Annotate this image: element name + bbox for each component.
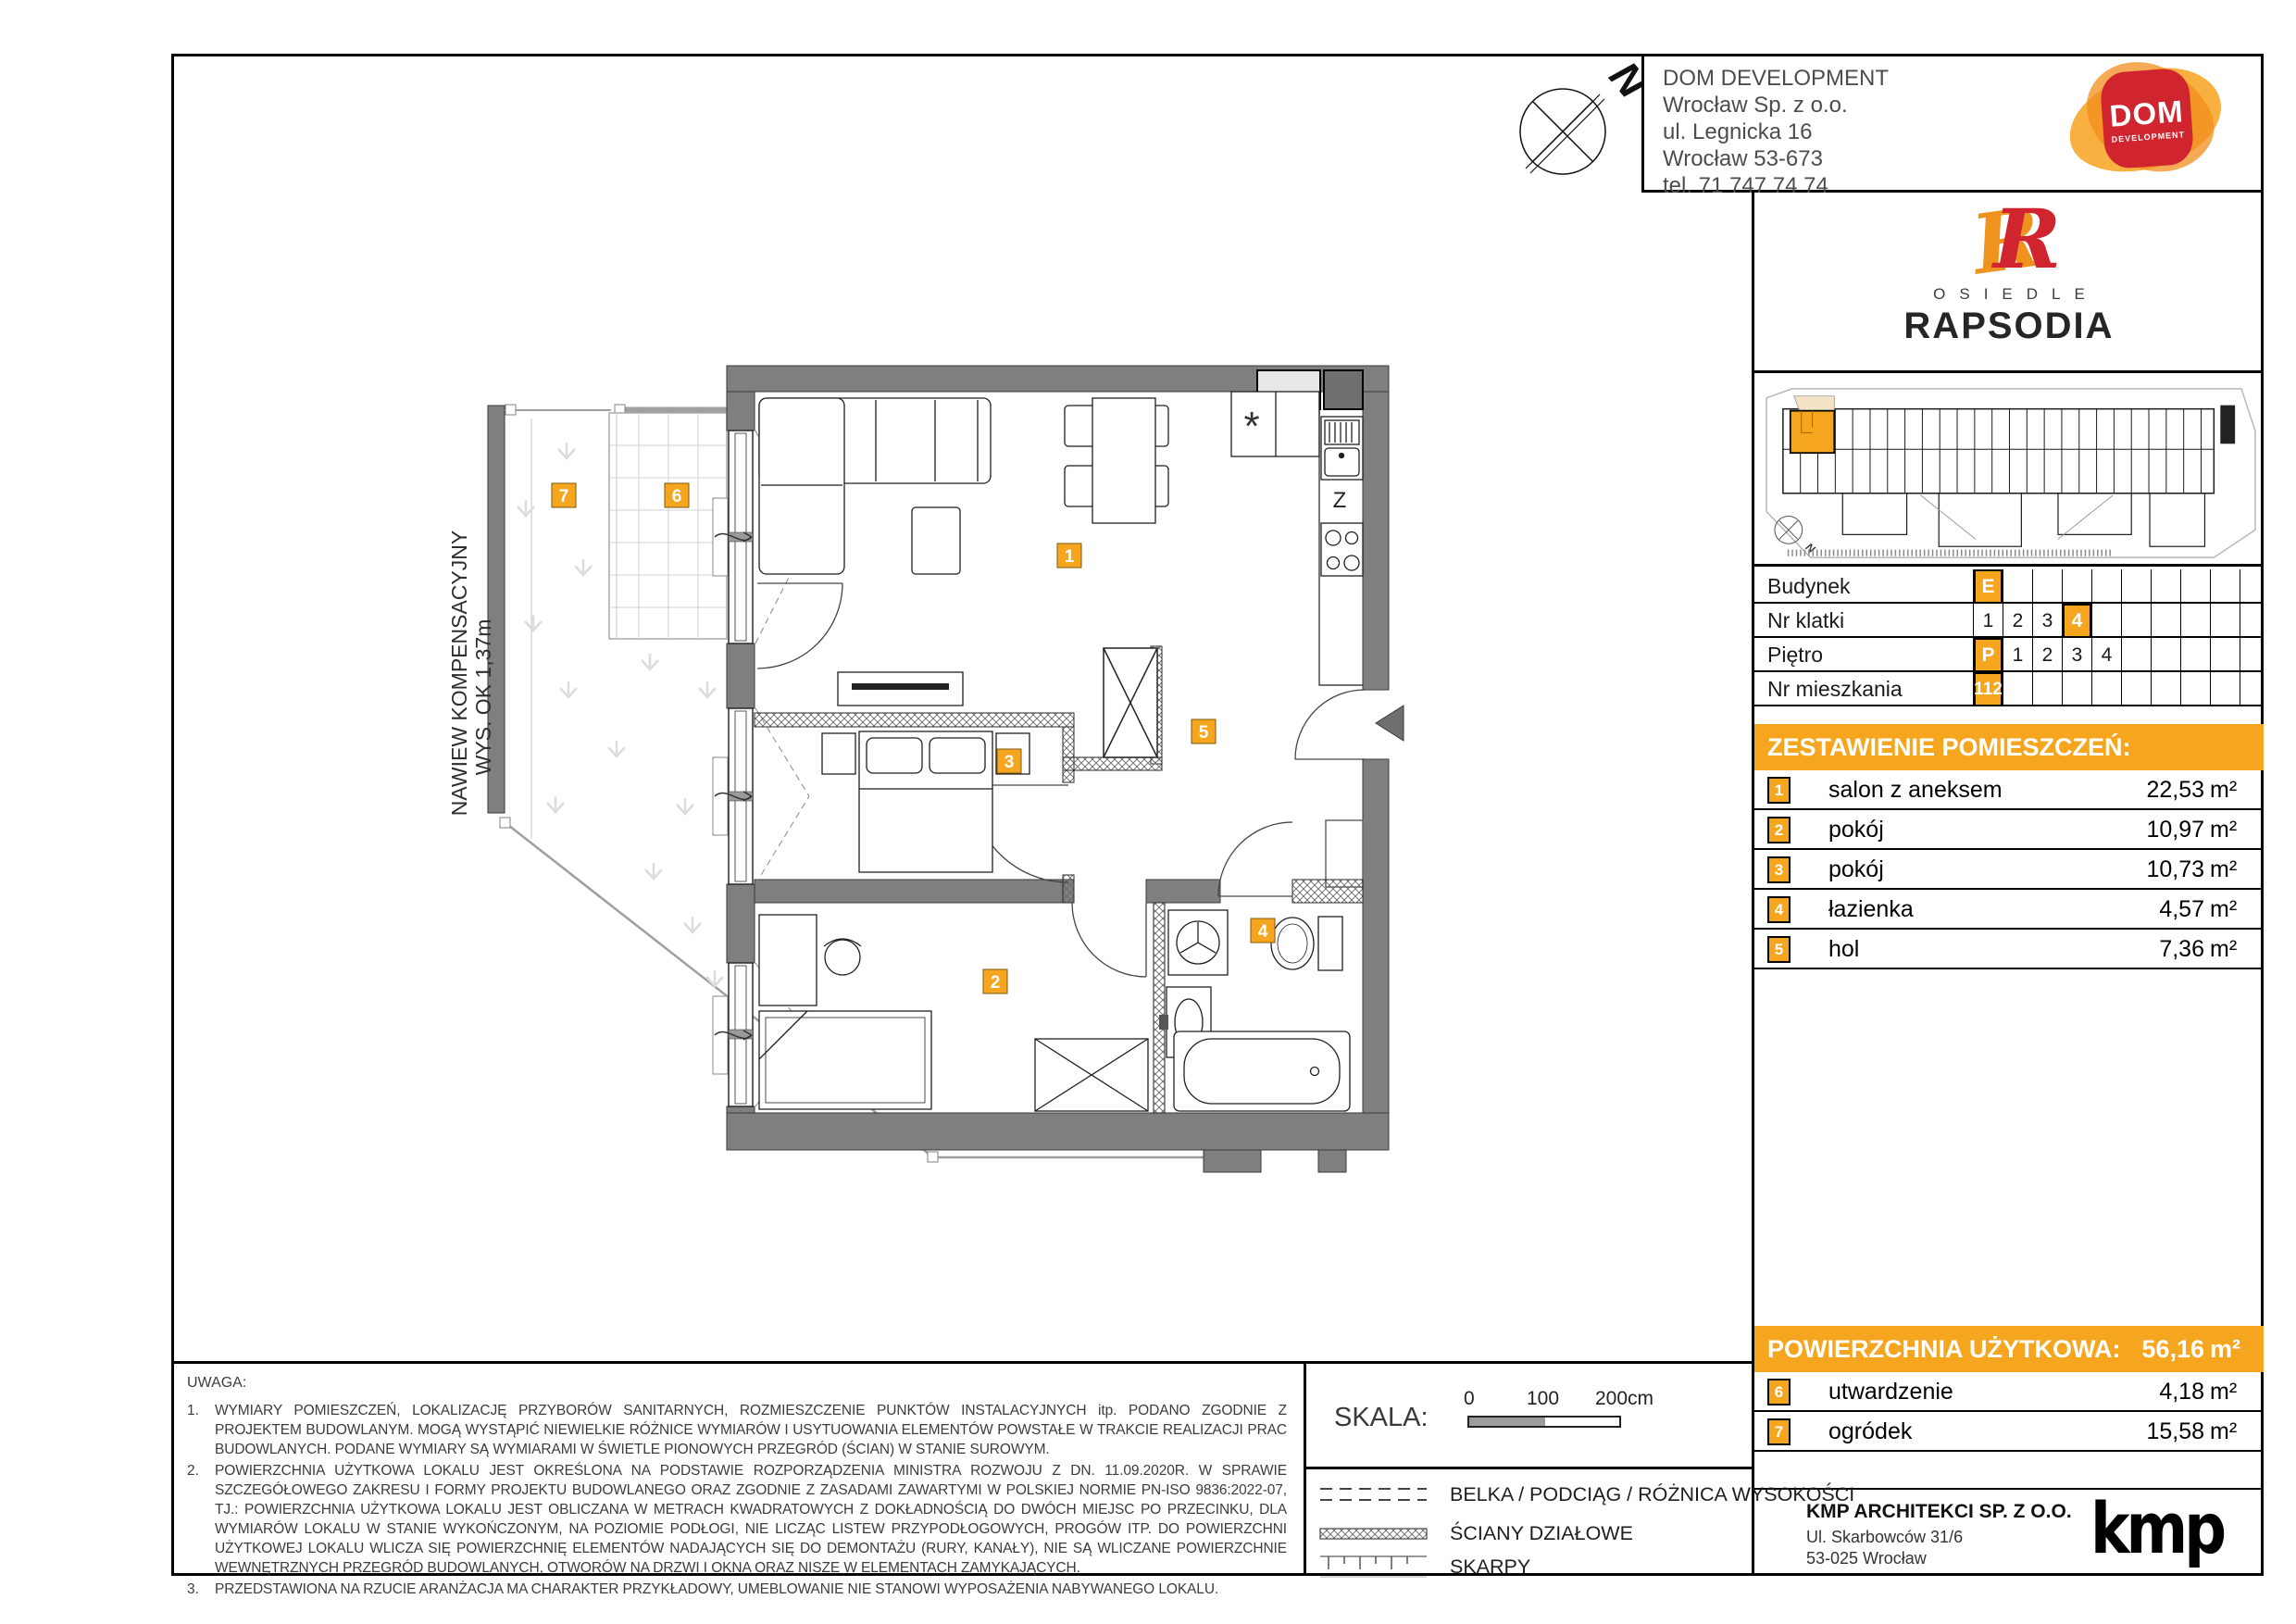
- developer-header: DOM DEVELOPMENT Wrocław Sp. z o.o. ul. L…: [1641, 54, 2264, 193]
- nawiew-label-line2: WYS. OK 1,37m: [471, 619, 495, 776]
- staircase-cell: 4: [2063, 604, 2092, 638]
- toilet: [1271, 917, 1342, 970]
- sink-symbol: Z: [1333, 488, 1347, 513]
- estate-logo-box: R R OSIEDLE RAPSODIA: [1754, 193, 2264, 373]
- notes-box: UWAGA: 1. WYMIARY POMIESZCZEŃ, LOKALIZAC…: [174, 1361, 1306, 1573]
- room-name: salon z aneksem: [1828, 770, 2003, 810]
- badge-hall: 5: [1192, 719, 1216, 743]
- svg-text:5: 5: [1199, 723, 1209, 743]
- room-area-unit: m²: [2210, 1372, 2251, 1412]
- note-item: 1. WYMIARY POMIESZCZEŃ, LOKALIZACJĘ PRZY…: [187, 1401, 1287, 1459]
- room-number-badge: 4: [1767, 896, 1791, 923]
- room-row-hol: 5 hol 7,36 m²: [1754, 930, 2264, 969]
- developer-street: ul. Legnicka 16: [1663, 119, 1889, 145]
- room2-desk: [759, 915, 861, 1006]
- scale-label: SKALA:: [1334, 1403, 1429, 1433]
- room-name: ogródek: [1828, 1412, 1912, 1452]
- entrance-door: [1295, 690, 1389, 759]
- room-number-badge: 3: [1767, 856, 1791, 883]
- kmp-logo: kmp: [2090, 1489, 2223, 1569]
- washing-machine: [1168, 910, 1228, 975]
- legend-box: BELKA / PODCIĄG / RÓŻNICA WYSOKOŚCI ŚCIA…: [1306, 1469, 1752, 1573]
- room-name: hol: [1828, 930, 1859, 969]
- rooms-table-header: ZESTAWIENIE POMIESZCZEŃ:: [1754, 724, 2264, 770]
- room-area-unit: m²: [2210, 810, 2251, 850]
- scale-tick-100: 100: [1527, 1388, 1559, 1410]
- room-area-unit: m²: [2210, 850, 2251, 890]
- room-area: 7,36: [2103, 930, 2204, 969]
- info-label: Budynek: [1767, 569, 1851, 604]
- extra-row-ogrodek: 7 ogródek 15,58 m²: [1754, 1412, 2264, 1452]
- info-row-apartment-number: Nr mieszkania 112: [1754, 672, 2264, 706]
- entrance-marker-icon: [1376, 706, 1404, 741]
- room-row-lazienka: 4 łazienka 4,57 m²: [1754, 890, 2264, 930]
- room-area: 22,53: [2103, 770, 2204, 810]
- developer-city: Wrocław 53-673: [1663, 145, 1889, 172]
- tv-console: [838, 672, 963, 706]
- floorplan-sheet: NAWIEW KOMPENSACYJNY WYS. OK 1,37m: [0, 0, 2296, 1624]
- scale-box: SKALA: 0 100 200cm: [1306, 1361, 1752, 1469]
- beam-symbol-icon: [1316, 1480, 1431, 1508]
- room-number-badge: 6: [1767, 1379, 1791, 1405]
- terrace-door: [757, 583, 842, 668]
- badge-bathroom: 4: [1251, 918, 1275, 943]
- info-label: Nr klatki: [1767, 604, 1844, 638]
- estate-name: RAPSODIA: [1754, 306, 2264, 347]
- terrace-tiles: [609, 413, 727, 639]
- usable-area-bar: POWIERZCHNIA UŻYTKOWA: 56,16 m²: [1754, 1326, 2264, 1372]
- room-row-salon: 1 salon z aneksem 22,53 m²: [1754, 770, 2264, 810]
- room-number-badge: 5: [1767, 936, 1791, 963]
- badge-room2: 2: [983, 969, 1007, 993]
- room-row-pokoj3: 3 pokój 10,73 m²: [1754, 850, 2264, 890]
- room-area: 10,97: [2103, 810, 2204, 850]
- architect-address: Ul. Skarbowców 31/6 53-025 Wrocław: [1806, 1527, 1963, 1569]
- room-area: 4,18: [2103, 1372, 2204, 1412]
- slope-symbol-icon: [1316, 1553, 1431, 1580]
- site-plan-terrace-highlight: [1794, 396, 1835, 411]
- north-letter: N: [1601, 56, 1641, 107]
- room-name: utwardzenie: [1828, 1372, 1953, 1412]
- room-area: 15,58: [2103, 1412, 2204, 1452]
- extra-row-utwardzenie: 6 utwardzenie 4,18 m²: [1754, 1372, 2264, 1412]
- scale-tick-200: 200cm: [1595, 1388, 1653, 1410]
- room-number-badge: 2: [1767, 817, 1791, 843]
- developer-company: Wrocław Sp. z o.o.: [1663, 92, 1889, 119]
- room-area: 10,73: [2103, 850, 2204, 890]
- scale-tick-0: 0: [1464, 1388, 1475, 1410]
- floor-plan-drawing: NAWIEW KOMPENSACYJNY WYS. OK 1,37m: [171, 56, 1641, 1359]
- room-row-pokoj2: 2 pokój 10,97 m²: [1754, 810, 2264, 850]
- hall-wardrobe: [1104, 648, 1157, 757]
- nawiew-label-line1: NAWIEW KOMPENSACYJNY: [447, 531, 471, 816]
- room-name: pokój: [1828, 810, 1884, 850]
- coffee-table: [912, 507, 960, 574]
- svg-text:4: 4: [1258, 922, 1268, 942]
- furniture: [759, 392, 1363, 1111]
- room-area: 4,57: [2103, 890, 2204, 930]
- north-compass-icon: N: [1520, 56, 1641, 174]
- room-area-unit: m²: [2210, 930, 2251, 969]
- info-row-staircase: Nr klatki 1 2 3 4: [1754, 604, 2264, 638]
- fridge-symbol: *: [1243, 404, 1259, 449]
- developer-name: DOM DEVELOPMENT: [1663, 65, 1889, 92]
- svg-text:7: 7: [559, 487, 569, 506]
- badge-living-room: 1: [1057, 543, 1081, 568]
- room-name: pokój: [1828, 850, 1884, 890]
- info-label: Nr mieszkania: [1767, 672, 1903, 706]
- site-plan-drawing: N: [1754, 376, 2264, 567]
- info-row-floor: Piętro P 1 2 3 4: [1754, 638, 2264, 672]
- info-row-building: Budynek E: [1754, 569, 2264, 604]
- badge-garden: 7: [552, 483, 576, 507]
- apartment-number-cell: 112: [1974, 672, 2003, 706]
- room-name: łazienka: [1828, 890, 1914, 930]
- note-item: 3. PRZEDSTAWIONA NA RZUCIE ARANŻACJA MA …: [187, 1580, 1287, 1599]
- note-item: 2. POWIERZCHNIA UŻYTKOWA LOKALU JEST OKR…: [187, 1461, 1287, 1578]
- fence-post: [505, 405, 516, 415]
- room-area-unit: m²: [2210, 770, 2251, 810]
- rapsodia-monogram-icon: R R: [1949, 198, 2069, 283]
- badge-room3: 3: [997, 749, 1021, 773]
- usable-area-label: POWIERZCHNIA UŻYTKOWA:: [1767, 1335, 2120, 1363]
- room-number-badge: 7: [1767, 1418, 1791, 1445]
- usable-area-unit: m²: [2210, 1326, 2252, 1372]
- svg-text:2: 2: [991, 973, 1001, 993]
- bathroom-door: [1218, 822, 1292, 896]
- developer-address-block: DOM DEVELOPMENT Wrocław Sp. z o.o. ul. L…: [1663, 65, 1889, 199]
- dom-development-logo: DOM DEVELOPMENT: [2062, 63, 2228, 180]
- floor-cell: P: [1974, 638, 2003, 672]
- room2-wardrobe: [1035, 1039, 1148, 1111]
- badge-terrace: 6: [665, 483, 689, 507]
- architect-street: Ul. Skarbowców 31/6: [1806, 1527, 1963, 1548]
- svg-text:1: 1: [1065, 547, 1075, 567]
- room-area-unit: m²: [2210, 890, 2251, 930]
- building-cell: E: [1974, 569, 2003, 604]
- svg-text:3: 3: [1004, 753, 1015, 772]
- bathtub: [1174, 1031, 1350, 1111]
- partition-wall-symbol-icon: [1316, 1519, 1431, 1547]
- room2-bed: [759, 1011, 931, 1109]
- room-number-badge: 1: [1767, 777, 1791, 804]
- svg-text:6: 6: [672, 487, 682, 506]
- architect-city: 53-025 Wrocław: [1806, 1548, 1963, 1569]
- usable-area-value: 56,16: [2084, 1326, 2204, 1372]
- dining-set: [1065, 398, 1168, 523]
- logo-title: DOM: [2108, 94, 2184, 133]
- notes-heading: UWAGA:: [187, 1375, 1287, 1392]
- site-plan-box: N: [1754, 376, 2264, 567]
- info-label: Piętro: [1767, 638, 1823, 672]
- room2-door: [1072, 903, 1146, 977]
- scale-bar: [1467, 1416, 1621, 1428]
- monogram-red: R: [1993, 196, 2061, 281]
- room-area-unit: m²: [2210, 1412, 2251, 1452]
- logo-core: DOM DEVELOPMENT: [2099, 68, 2194, 169]
